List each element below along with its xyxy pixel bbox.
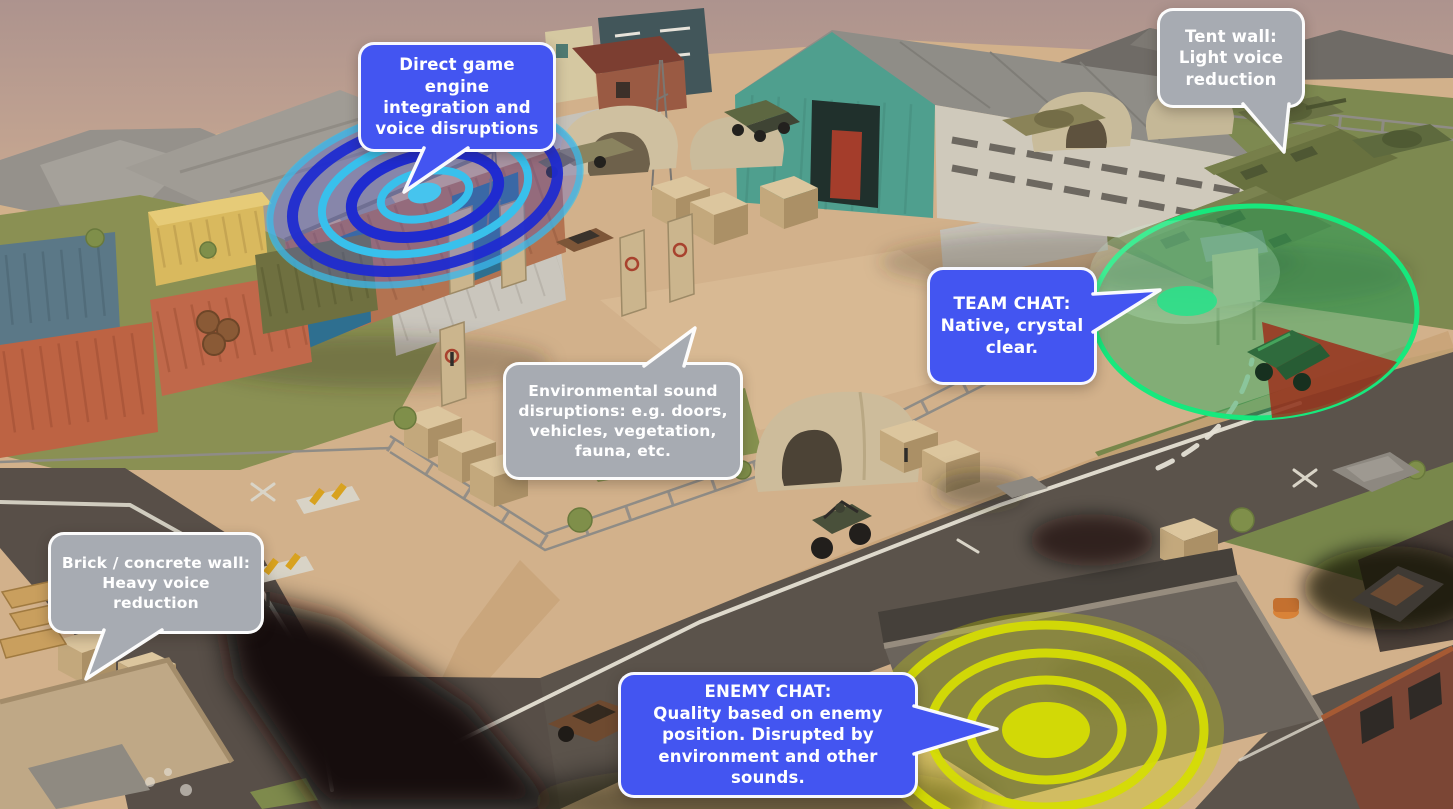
callout-tent-wall-text: Tent wall: Light voice reduction: [1179, 26, 1283, 90]
callout-team-chat: TEAM CHAT: Native, crystal clear.: [927, 267, 1097, 385]
game-scene-screenshot: Direct game engine integration and voice…: [0, 0, 1453, 809]
callout-engine-integration-text: Direct game engine integration and voice…: [371, 54, 543, 140]
callout-engine-integration: Direct game engine integration and voice…: [358, 42, 556, 152]
callout-brick-wall-text: Brick / concrete wall: Heavy voice reduc…: [62, 553, 250, 613]
callout-environmental-sound: Environmental sound disruptions: e.g. do…: [503, 362, 743, 480]
callout-brick-wall: Brick / concrete wall: Heavy voice reduc…: [48, 532, 264, 634]
callout-environmental-sound-text: Environmental sound disruptions: e.g. do…: [518, 381, 727, 462]
callout-enemy-chat-text: ENEMY CHAT: Quality based on enemy posit…: [631, 681, 905, 788]
team-chat-zone-effect: [1090, 206, 1417, 418]
callout-tent-wall: Tent wall: Light voice reduction: [1157, 8, 1305, 108]
callout-enemy-chat: ENEMY CHAT: Quality based on enemy posit…: [618, 672, 918, 798]
callout-team-chat-text: TEAM CHAT: Native, crystal clear.: [941, 293, 1084, 359]
orange-barrel: [1273, 598, 1299, 619]
